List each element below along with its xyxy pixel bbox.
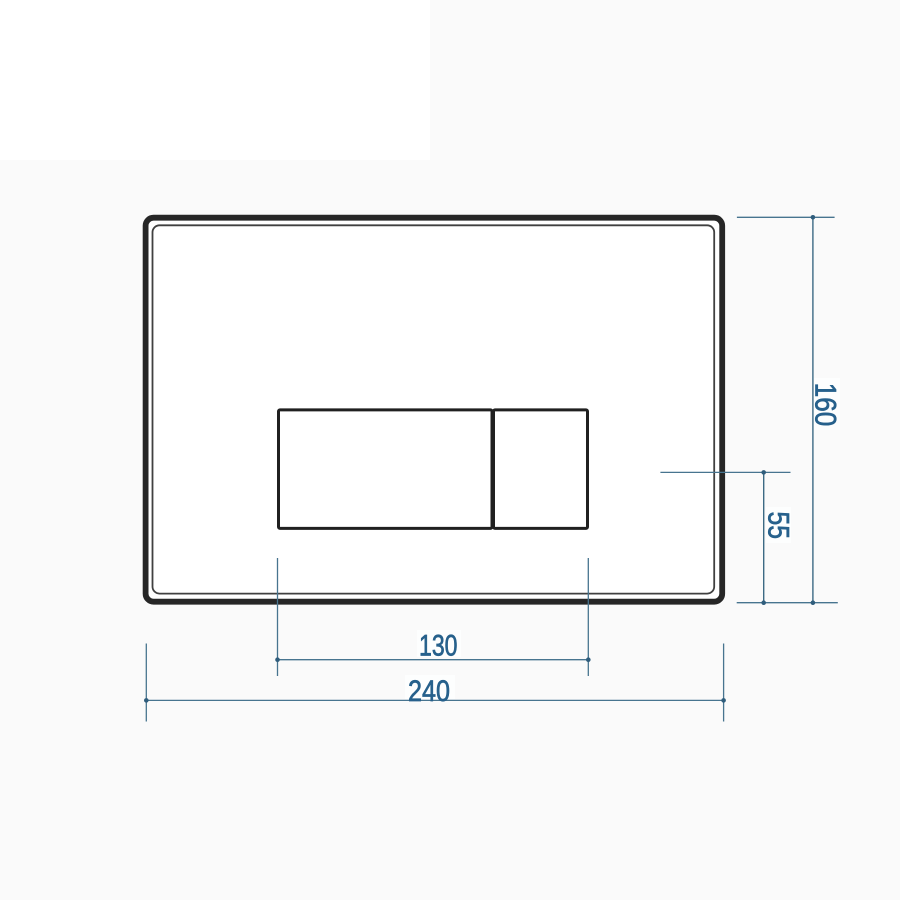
svg-text:55: 55 — [762, 512, 795, 540]
svg-text:240: 240 — [408, 675, 450, 708]
svg-text:160: 160 — [809, 383, 842, 427]
svg-text:130: 130 — [419, 630, 458, 663]
